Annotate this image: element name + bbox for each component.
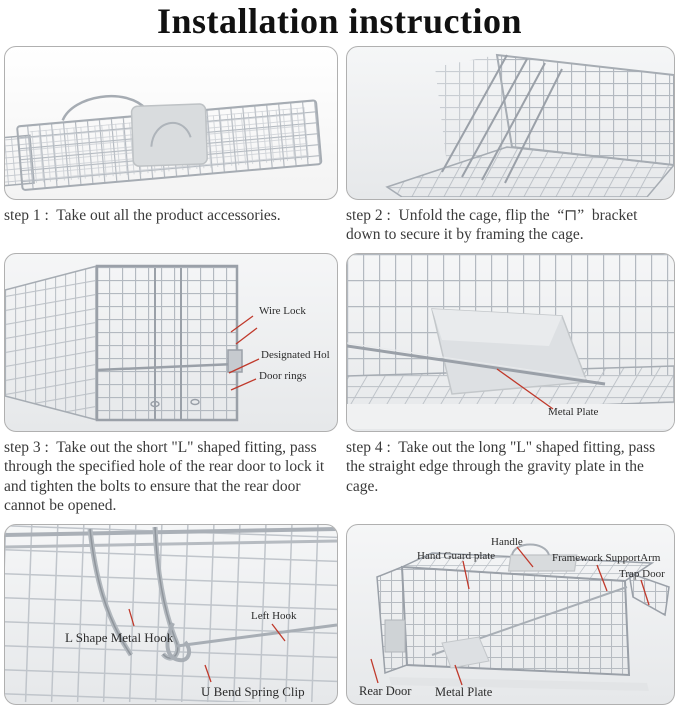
step-5-section: L Shape Metal Hook Left Hook U Bend Spri…: [4, 524, 338, 711]
part-label-wire-lock: Wire Lock: [259, 306, 306, 317]
metal-plate: [131, 103, 207, 166]
step-2-section: step 2 : Unfold the cage, flip the “⊓” b…: [346, 46, 675, 253]
step-2-photo: [346, 46, 675, 200]
step-1-caption: step 1 : Take out all the product access…: [4, 206, 338, 226]
part-label-hand-guard-plate: Hand Guard plate: [417, 551, 495, 562]
installation-instruction-sheet: Installation instruction: [0, 0, 679, 711]
step-4-section: Metal Plate step 4 : Take out the long "…: [346, 253, 675, 524]
part-label-door-rings: Door rings: [259, 371, 306, 382]
step-4-photo: Metal Plate: [346, 253, 675, 432]
step-1-photo: [4, 46, 338, 200]
step-3-section: Wire Lock Designated Hol Door rings step…: [4, 253, 338, 524]
step-6-photo: Handle Hand Guard plate Framework Suppor…: [346, 524, 675, 705]
step-3-caption: step 3 : Take out the short "L" shaped f…: [4, 438, 338, 516]
part-label-metal-plate: Metal Plate: [548, 407, 598, 418]
part-label-l-shape-metal-hook: L Shape Metal Hook: [65, 631, 173, 644]
step-5-photo: L Shape Metal Hook Left Hook U Bend Spri…: [4, 524, 338, 705]
part-label-handle: Handle: [491, 537, 523, 548]
folded-cage: [5, 78, 321, 192]
part-label-designated-hole: Designated Hol: [261, 350, 330, 361]
step-6-section: Handle Hand Guard plate Framework Suppor…: [346, 524, 675, 711]
part-label-u-bend-spring-clip: U Bend Spring Clip: [201, 685, 305, 698]
step-4-caption: step 4 : Take out the long "L" shaped fi…: [346, 438, 675, 497]
part-label-rear-door: Rear Door: [359, 685, 411, 698]
rear-door-illustration: [5, 254, 337, 429]
step-2-caption: step 2 : Unfold the cage, flip the “⊓” b…: [346, 206, 675, 245]
unfolded-cage-illustration: [347, 47, 674, 197]
step-3-photo: Wire Lock Designated Hol Door rings: [4, 253, 338, 432]
part-label-left-hook: Left Hook: [251, 611, 297, 622]
shadow: [389, 677, 649, 691]
part-label-trap-door: Trap Door: [619, 569, 665, 580]
page-title: Installation instruction: [0, 2, 679, 42]
folded-cage-illustration: [5, 47, 337, 197]
steps-grid: step 1 : Take out all the product access…: [0, 46, 679, 711]
wire-lock-bracket: [228, 350, 242, 372]
gravity-plate-illustration: [347, 254, 674, 429]
part-label-metal-plate: Metal Plate: [435, 686, 492, 699]
step-1-section: step 1 : Take out all the product access…: [4, 46, 338, 253]
rear-door-plate: [385, 620, 405, 652]
part-label-framework-support-arm: Framework SupportArm: [552, 553, 660, 564]
